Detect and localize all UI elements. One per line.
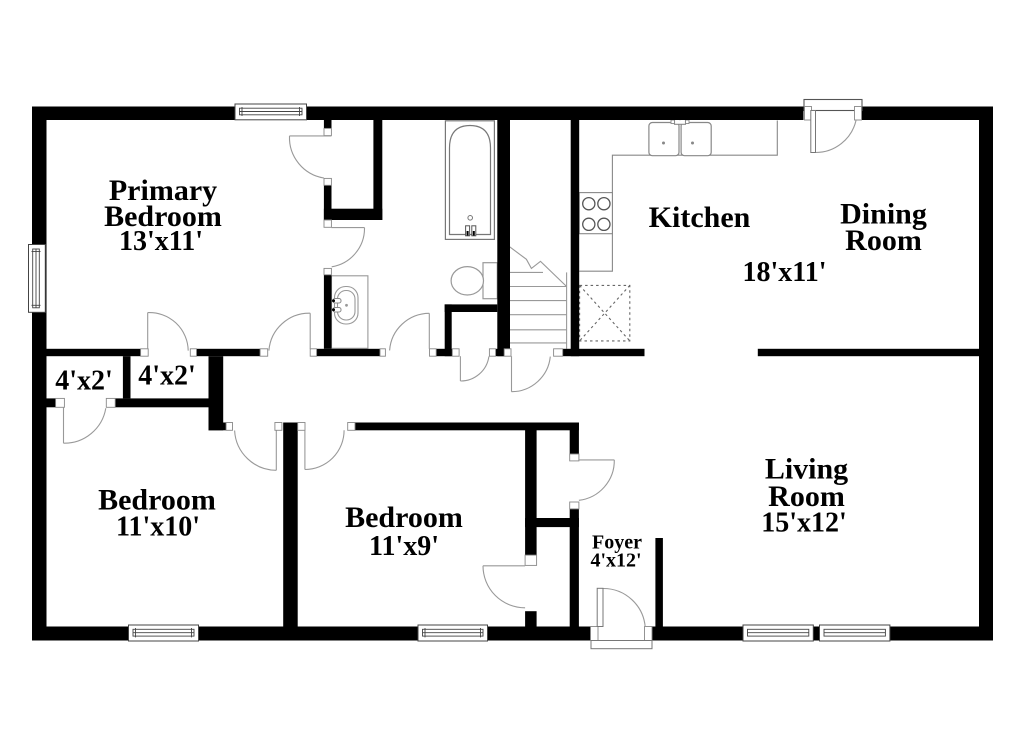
svg-text:Kitchen: Kitchen: [649, 201, 751, 234]
svg-text:11'x9': 11'x9': [369, 531, 439, 562]
svg-text:Room: Room: [845, 224, 922, 257]
svg-text:18'x11': 18'x11': [742, 257, 826, 288]
svg-text:13'x11': 13'x11': [119, 226, 203, 257]
svg-text:Bedroom: Bedroom: [345, 501, 463, 534]
svg-text:11'x10': 11'x10': [116, 512, 200, 543]
svg-text:4'x2': 4'x2': [138, 361, 196, 392]
svg-text:4'x12': 4'x12': [590, 550, 641, 572]
svg-text:4'x2': 4'x2': [55, 366, 113, 397]
svg-text:15'x12': 15'x12': [761, 508, 847, 539]
